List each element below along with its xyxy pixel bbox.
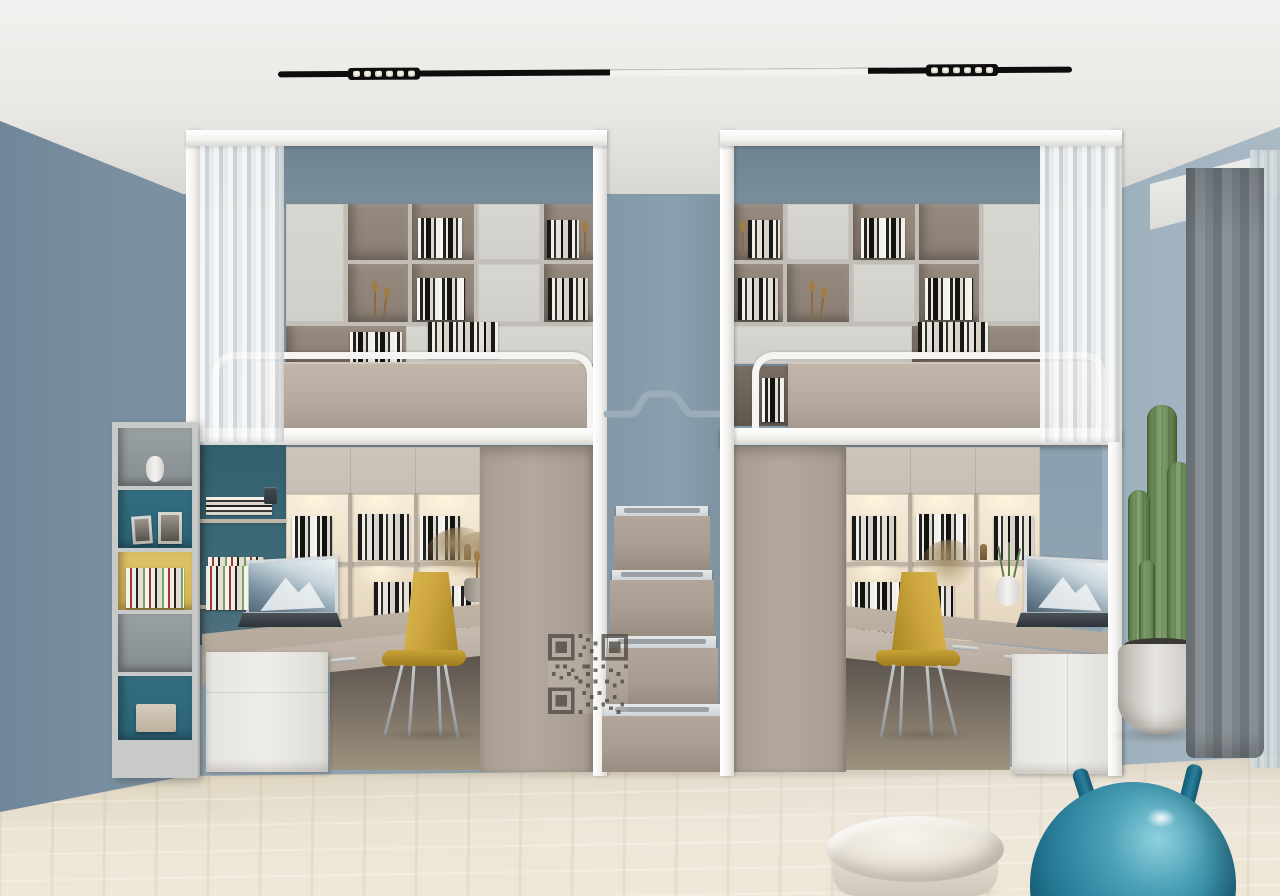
open-cubby: [412, 204, 474, 260]
upper-bookshelf: [286, 204, 593, 364]
open-cubby: [544, 204, 593, 260]
bed-curtain: [200, 146, 284, 442]
cactus-arm: [1139, 560, 1155, 646]
dried-stem: [742, 230, 744, 256]
books: [358, 514, 410, 560]
spot-icon: [931, 67, 938, 73]
plant-sprig: [1008, 542, 1010, 578]
photo-frame: [158, 512, 182, 544]
light-lit-segment: [610, 68, 868, 77]
books: [206, 566, 248, 610]
spot-icon: [397, 71, 404, 77]
dried-stem: [374, 290, 376, 318]
stair-riser: [602, 716, 720, 772]
stair-tread: [616, 506, 708, 516]
open-cubby: [412, 264, 474, 322]
shelf-tower: [112, 422, 198, 778]
wardrobe-right: [734, 446, 846, 772]
books: [748, 220, 780, 258]
door-seam: [910, 447, 911, 494]
laptop-keyboard: [238, 612, 342, 627]
qr-code-watermark: [546, 634, 630, 714]
books: [547, 220, 579, 258]
door-seam: [1067, 654, 1068, 774]
cabinet-door: [478, 204, 540, 260]
tower-cubby: [118, 676, 192, 740]
spot-icon: [953, 67, 960, 73]
open-cubby: [853, 204, 915, 260]
tower-cubby: [118, 428, 192, 486]
open-cubby: [348, 204, 408, 260]
stair-riser: [610, 580, 714, 636]
open-cubby: [919, 204, 979, 260]
shelf-board: [200, 519, 286, 523]
storage-box: [136, 704, 176, 732]
open-cubby: [787, 264, 849, 322]
hutch-top-cabinet: [846, 447, 1040, 494]
dried-stem: [584, 230, 586, 256]
desk-vase: [996, 576, 1020, 606]
open-cubby: [734, 204, 783, 260]
books: [852, 516, 896, 560]
spot-icon: [364, 71, 371, 77]
drawer-seam: [206, 692, 328, 693]
wardrobe-left: [480, 446, 593, 772]
spot-icon: [975, 67, 982, 73]
dried-stem: [382, 296, 387, 318]
tower-cubby: [118, 490, 192, 548]
spot-icon: [964, 67, 971, 73]
cabinet-door: [286, 204, 344, 322]
desk-pedestal-cabinet: [1012, 654, 1122, 774]
spot-icon: [375, 71, 382, 77]
tower-cubby: [118, 614, 192, 672]
pouf-top: [826, 816, 1004, 882]
decor-bottle: [980, 544, 987, 560]
chair-shadow: [380, 728, 484, 742]
cabinet-door: [787, 204, 849, 260]
hutch-top-cabinet: [286, 447, 480, 494]
cabinet-door: [983, 204, 1040, 322]
bed-curtain: [1040, 146, 1120, 442]
frame-beam: [720, 130, 1122, 146]
white-vase: [146, 456, 164, 482]
spotlight-cluster: [348, 68, 420, 80]
spot-icon: [408, 71, 415, 77]
door-seam: [415, 447, 416, 494]
magazine-stack: [206, 497, 272, 515]
books: [861, 218, 905, 258]
cabinet-door: [478, 264, 540, 322]
books: [738, 278, 778, 320]
frame-post: [720, 130, 734, 776]
handrail: [603, 380, 723, 428]
desk-pedestal-cabinet: [206, 652, 328, 772]
books: [126, 568, 184, 608]
chair-seat: [380, 650, 467, 666]
spot-icon: [942, 67, 949, 73]
stair-riser: [614, 516, 710, 570]
stair-tread: [612, 570, 712, 580]
upper-bookshelf: [734, 204, 1040, 364]
open-cubby: [544, 264, 593, 322]
books: [292, 516, 332, 560]
open-cubby: [348, 264, 408, 322]
dried-stem: [811, 290, 813, 318]
power-socket: [264, 487, 277, 504]
books: [417, 278, 465, 320]
spotlight-cluster: [926, 64, 998, 76]
books: [925, 278, 973, 320]
open-cubby: [734, 264, 783, 322]
open-cubby: [919, 264, 979, 322]
cabinet-door: [853, 264, 915, 322]
chair-seat: [874, 650, 961, 666]
frame-beam: [186, 130, 607, 146]
photo-frame: [131, 515, 153, 544]
books: [418, 218, 462, 258]
spot-icon: [986, 67, 993, 73]
scene: [0, 0, 1280, 896]
door-seam: [975, 447, 976, 494]
spot-icon: [353, 71, 360, 77]
chair-shadow: [872, 728, 976, 742]
tower-cubby: [118, 552, 192, 610]
ball-highlight: [1146, 808, 1176, 828]
laptop-keyboard: [1016, 612, 1118, 627]
spot-icon: [386, 71, 393, 77]
blackout-curtain: [1186, 168, 1264, 758]
dried-stem: [819, 296, 824, 318]
books: [548, 278, 588, 320]
door-seam: [350, 447, 351, 494]
